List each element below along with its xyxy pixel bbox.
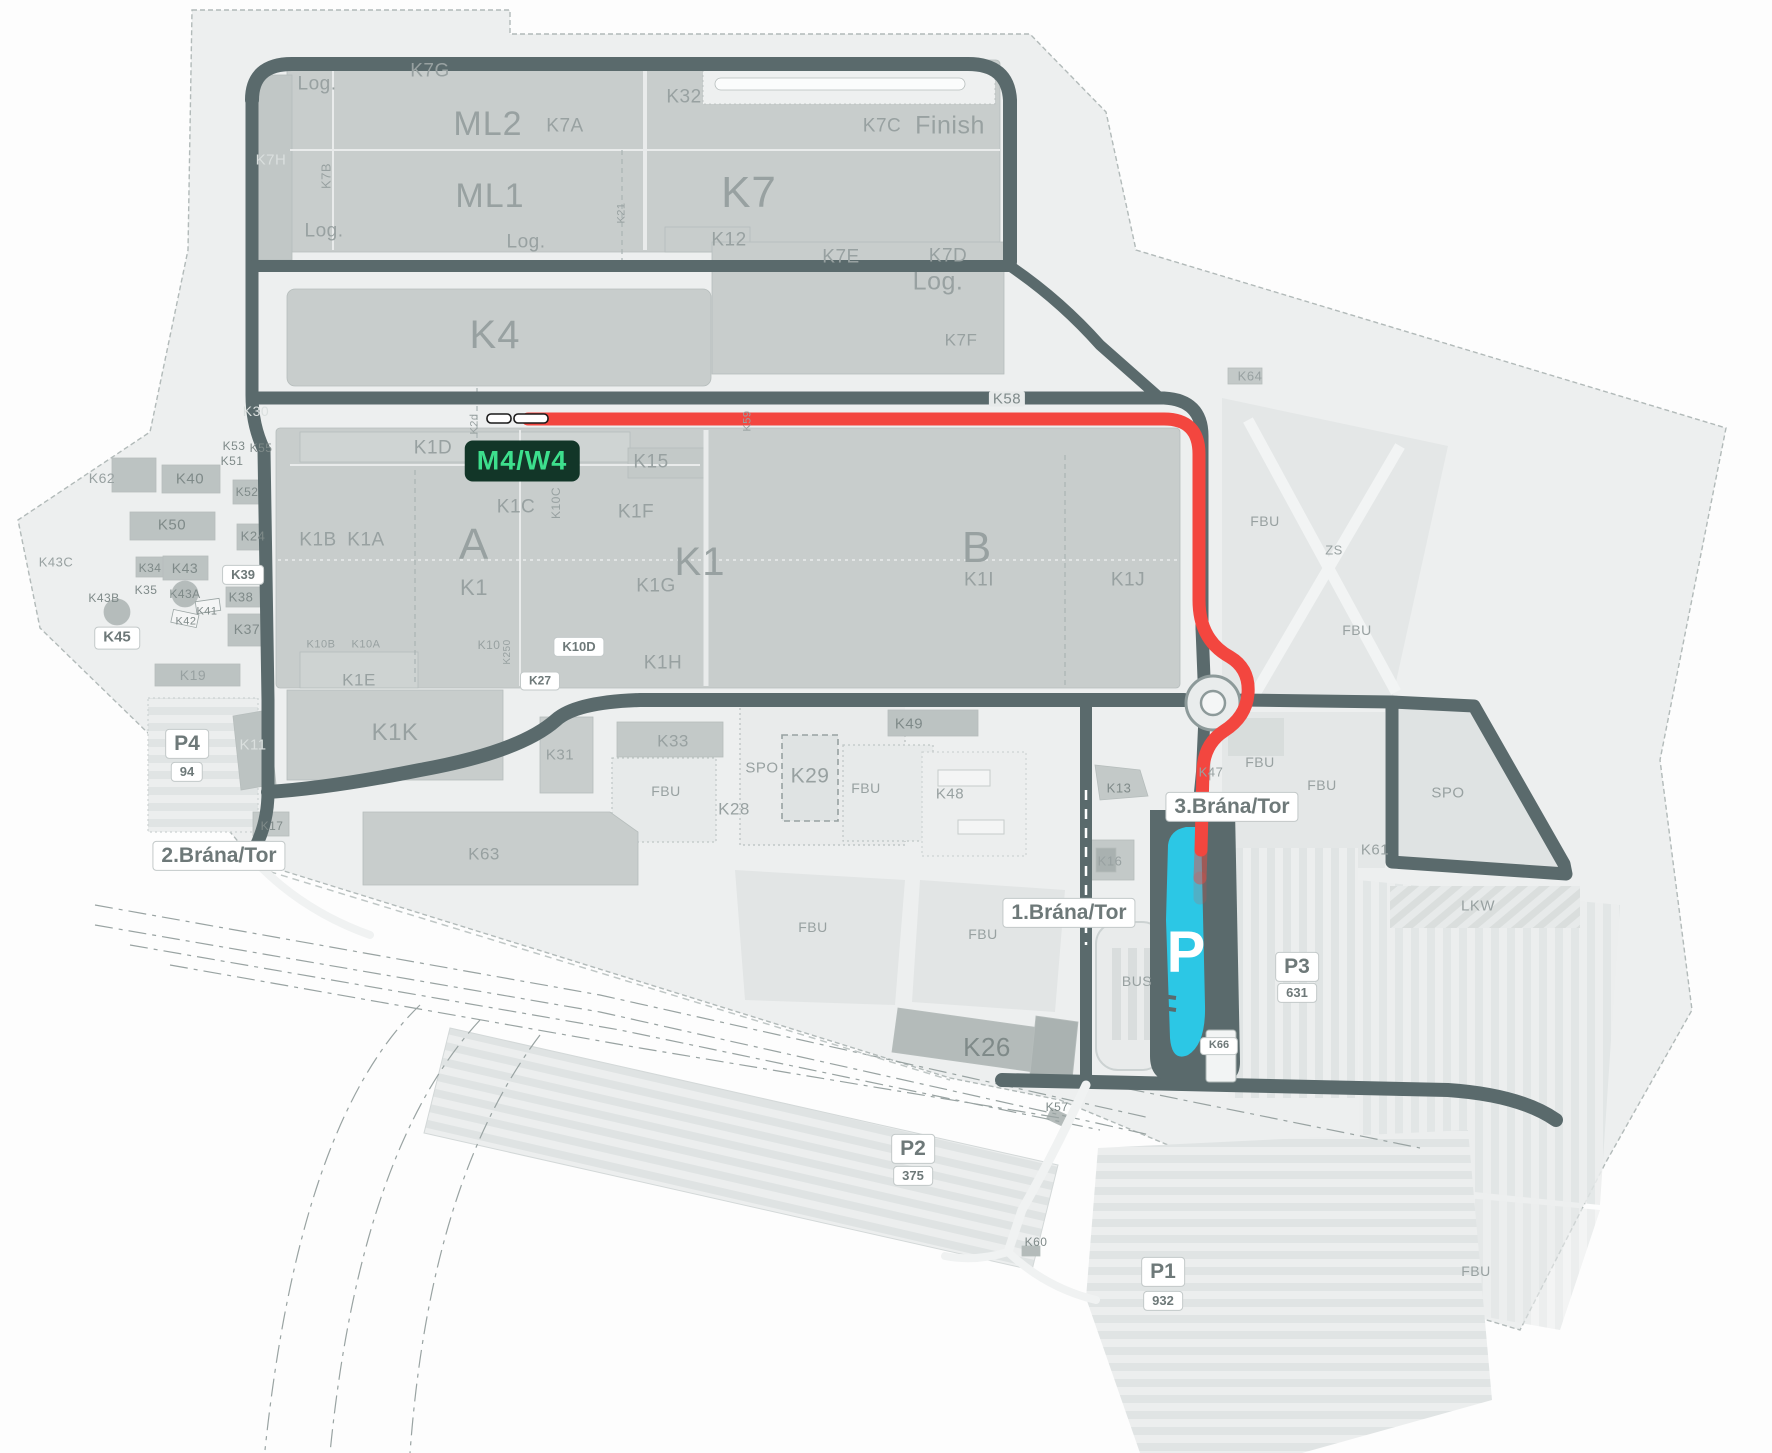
map-badge: K27: [520, 672, 560, 691]
plant-site-map: Log.K7GML2K7AK32K7CFinishK7HK7BML1K7K21L…: [0, 0, 1772, 1453]
map-label: K42: [175, 617, 196, 628]
map-label: FBU: [1461, 1264, 1491, 1278]
map-label: K62: [89, 471, 115, 485]
map-label: K19: [180, 668, 206, 682]
map-label: K43C: [39, 556, 74, 569]
map-label: K43A: [169, 588, 200, 600]
map-label: SPO: [1431, 786, 1464, 801]
map-label: K10: [478, 639, 501, 651]
map-label: K10A: [352, 640, 381, 651]
map-label: K2d: [470, 413, 481, 434]
map-badge: P4: [165, 729, 209, 759]
highlight-buildings: [487, 414, 548, 423]
map-label: K35: [135, 584, 158, 596]
map-label: K21: [617, 202, 628, 223]
map-label: K63: [468, 846, 500, 863]
map-label: ML1: [455, 179, 524, 213]
map-label: K7A: [546, 117, 583, 136]
map-badge: 1.Brána/Tor: [1002, 898, 1135, 928]
map-badge: K45: [94, 627, 140, 650]
map-label: K59: [743, 410, 754, 431]
map-label: K7C: [863, 117, 901, 136]
map-label: K1F: [618, 503, 654, 522]
destination-highlight-badge: M4/W4: [465, 441, 580, 482]
map-badge: 932: [1143, 1291, 1183, 1311]
map-label: K58: [989, 392, 1025, 407]
map-badge: 3.Brána/Tor: [1165, 792, 1298, 822]
map-label: ML2: [453, 107, 522, 141]
map-label: Log.: [507, 233, 546, 252]
map-label: K26: [963, 1034, 1011, 1060]
map-label: K10B: [307, 640, 336, 651]
map-label: K50: [158, 518, 186, 533]
map-label: K60: [1025, 1236, 1048, 1248]
map-label: Log.: [913, 270, 964, 295]
map-label: K7F: [945, 332, 978, 349]
map-label: K15: [633, 453, 668, 472]
map-label: K41: [196, 607, 217, 618]
map-label: K1J: [1111, 571, 1145, 590]
map-label: Finish: [915, 114, 985, 139]
map-label: K1B: [299, 531, 336, 550]
map-label: Log.: [298, 75, 337, 94]
map-label: K31: [546, 748, 574, 763]
map-label: K53: [223, 440, 246, 452]
map-label: K7E: [822, 248, 859, 267]
map-label: K1K: [372, 721, 419, 745]
parking-p-letter: P: [1167, 919, 1206, 986]
map-label: K1E: [342, 672, 376, 689]
map-label: BUS: [1122, 974, 1152, 988]
map-label: K34: [139, 562, 162, 574]
map-badge: 94: [171, 762, 203, 782]
map-label: FBU: [798, 920, 828, 934]
map-label: K17: [261, 820, 284, 832]
map-label: K51: [221, 455, 244, 467]
map-label: K48: [936, 787, 964, 802]
map-label: K13: [1107, 782, 1132, 795]
map-label: K38: [229, 591, 254, 604]
map-badge: K39: [222, 565, 264, 585]
map-label: K64: [1238, 370, 1263, 383]
map-label: A: [459, 523, 489, 567]
map-label: K7H: [256, 153, 287, 168]
map-badge: 375: [893, 1166, 933, 1186]
map-label: K28: [718, 801, 750, 818]
map-label: K1: [460, 577, 488, 599]
map-label: K24: [241, 530, 266, 543]
map-badge: 2.Brána/Tor: [152, 841, 285, 871]
map-badge: K66: [1200, 1037, 1238, 1055]
map-label: K40: [176, 472, 204, 487]
map-label: FBU: [1245, 755, 1275, 769]
map-label: K1D: [414, 439, 452, 458]
map-label: K1: [675, 542, 726, 582]
map-label: K43: [172, 561, 198, 575]
map-label: K16: [1098, 855, 1123, 868]
map-label: K29: [791, 766, 830, 787]
map-label: K1H: [644, 654, 682, 673]
map-label: K7G: [410, 62, 450, 81]
map-label: K1G: [636, 577, 676, 596]
map-label: K52: [236, 486, 259, 498]
map-label: K49: [895, 717, 923, 732]
map-label: K61: [1361, 843, 1389, 858]
map-label: K7B: [320, 163, 333, 189]
map-label: K55: [250, 442, 273, 454]
map-label: B: [962, 526, 992, 570]
map-label: K1A: [347, 531, 384, 550]
map-label: SPO: [745, 761, 778, 776]
map-label: Log.: [305, 222, 344, 241]
map-label: K43B: [88, 592, 119, 604]
map-label: K33: [657, 733, 689, 750]
map-label: FBU: [1250, 514, 1280, 528]
map-label: K30: [243, 404, 269, 418]
map-label: FBU: [1307, 778, 1337, 792]
map-label: K10C: [550, 487, 562, 519]
map-label: FBU: [651, 784, 681, 798]
map-label: K1C: [497, 498, 535, 517]
map-canvas: [0, 0, 1772, 1453]
map-label: K7D: [929, 247, 967, 266]
map-badge: P3: [1275, 952, 1319, 982]
map-label: LKW: [1461, 899, 1495, 914]
map-label: K250: [503, 639, 513, 664]
map-label: FBU: [851, 781, 881, 795]
map-badge: P1: [1141, 1257, 1185, 1287]
map-badge: 631: [1277, 983, 1317, 1003]
map-label: K4: [470, 315, 521, 355]
map-badge: P2: [891, 1134, 935, 1164]
map-label: FBU: [968, 927, 998, 941]
map-label: K7: [721, 171, 777, 215]
map-label: K11: [239, 738, 266, 753]
map-label: K37: [234, 622, 260, 636]
map-label: K32: [666, 88, 701, 107]
map-label: K1I: [964, 571, 994, 590]
map-label: K57: [1046, 1101, 1069, 1113]
map-badge: K10D: [553, 637, 604, 657]
map-label: FBU: [1342, 623, 1372, 637]
map-label: K47: [1199, 766, 1224, 779]
map-label: ZS: [1325, 544, 1343, 557]
map-label: K12: [711, 231, 746, 250]
